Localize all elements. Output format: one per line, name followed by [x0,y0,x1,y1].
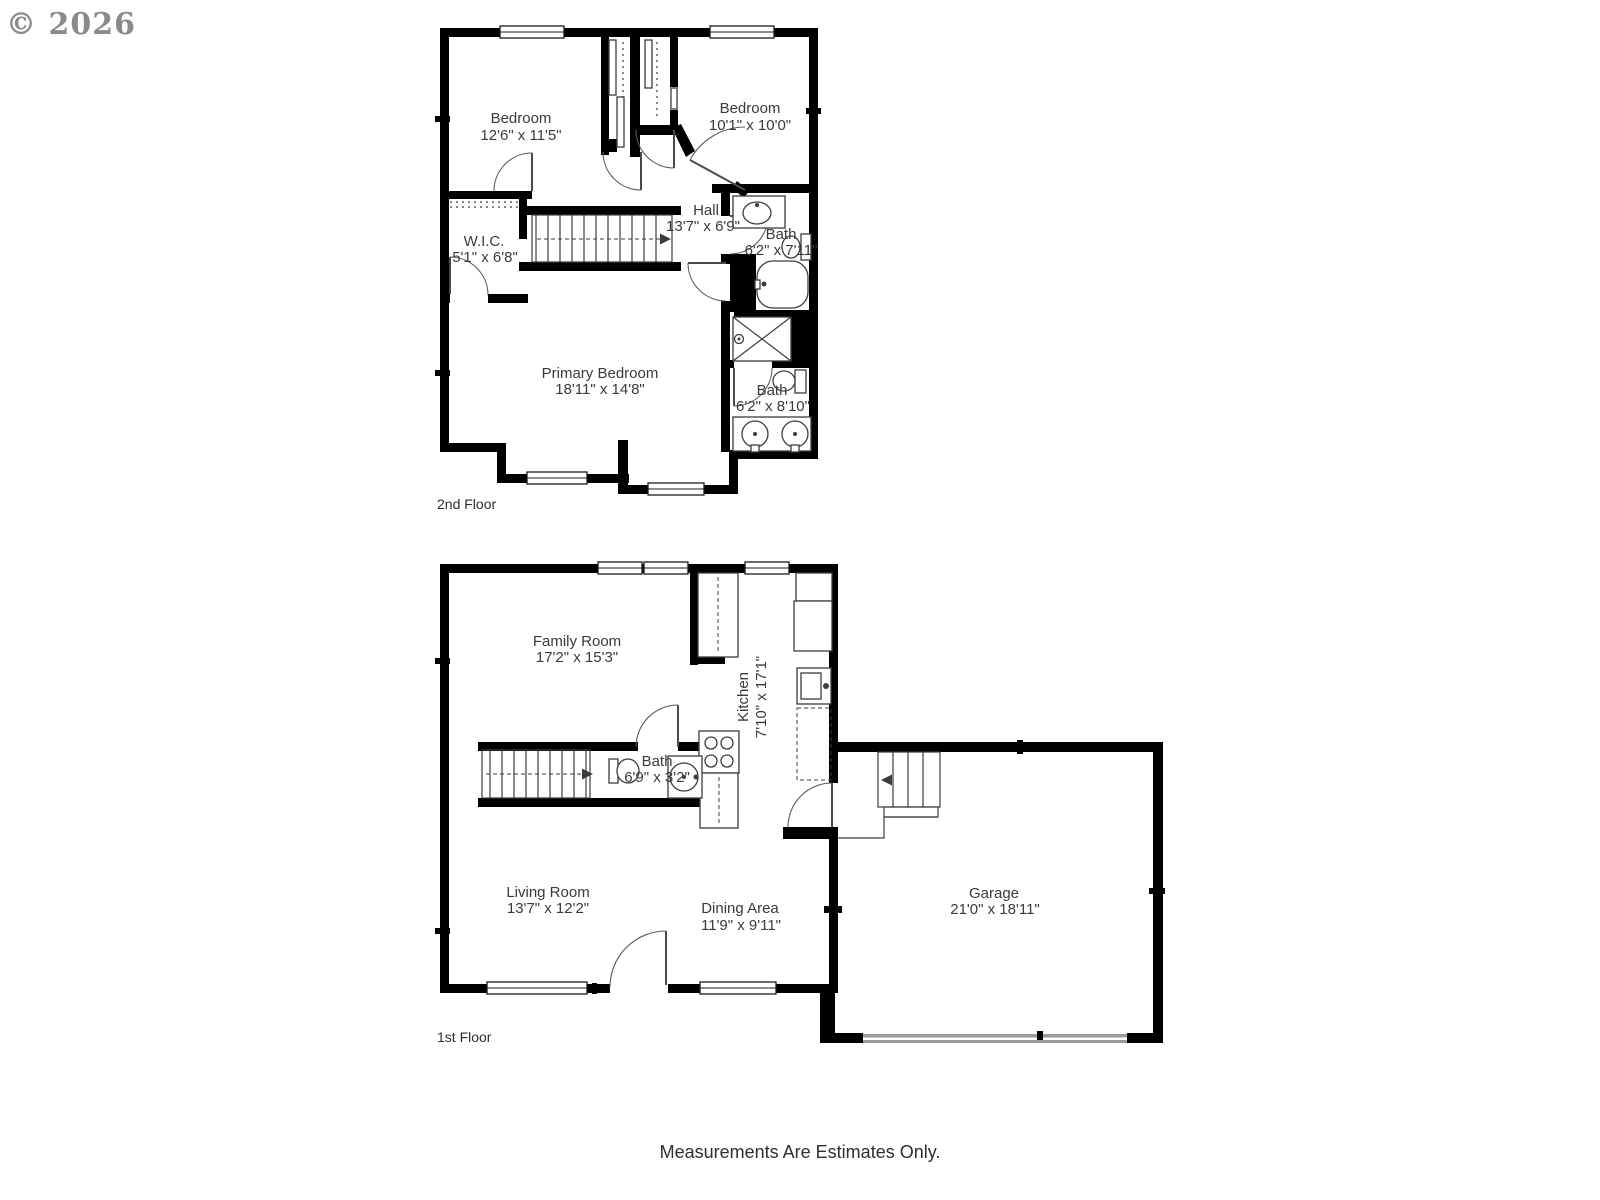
closet-slider-panel [671,88,677,109]
room-dims: 5'1" x 6'8" [452,249,518,266]
room-name: Primary Bedroom [542,365,659,382]
room-name: Garage [969,885,1019,902]
room-name: Hall [693,202,719,219]
room-dims: 11'9" x 9'11" [701,917,781,934]
room-dims: 6'2" x 7'11" [745,242,818,259]
door [603,152,641,190]
room-label-wic: W.I.C. 5'1" x 6'8" [452,233,518,266]
room-dims: 10'1" x 10'0" [709,117,791,134]
floor-label-2nd: 2nd Floor [437,496,496,512]
window [648,483,704,495]
room-label-bath-upper: Bath 6'2" x 7'11" [745,226,818,259]
window [598,562,642,574]
floor-plan-page: © 2026 [0,0,1600,1200]
disclaimer-text: Measurements Are Estimates Only. [660,1142,941,1162]
room-name: Bath [766,226,797,243]
room-label-living-room: Living Room 13'7" x 12'2" [506,884,589,917]
floor-plan-canvas: © 2026 [0,0,1600,1200]
closet-slider-panel [609,40,616,95]
front-door [610,931,666,987]
room-label-garage: Garage 21'0" x 18'11" [950,885,1040,918]
garage-entry-door [788,783,832,827]
stair-platform [838,817,938,838]
room-dims: 13'7" x 6'9" [666,218,740,235]
door [690,127,745,190]
room-dims: 7'10" x 17'1" [753,656,770,738]
room-dims: 13'7" x 12'2" [507,900,589,917]
garage-door [863,1034,1127,1038]
garage-door [863,1040,1127,1043]
double-vanity-sinks [733,417,811,452]
dishwasher [797,708,831,780]
stairs-direction-arrow [660,234,671,245]
room-name: Bedroom [720,100,781,117]
floor-label-1st: 1st Floor [437,1029,492,1045]
bathtub [755,261,808,308]
window [710,26,774,38]
room-label-kitchen: Kitchen 7'10" x 17'1" [735,656,770,738]
stairs-direction-arrow [881,775,892,786]
room-label-dining-area: Dining Area 11'9" x 9'11" [701,900,781,934]
door [688,263,726,301]
shower [733,317,791,361]
kitchen-sink [797,668,831,704]
room-dims: 18'11" x 14'8" [555,381,645,398]
room-name: Dining Area [701,900,779,917]
room-label-bedroom-2: Bedroom 10'1" x 10'0" [709,100,791,134]
room-name: Family Room [533,633,621,650]
room-name: W.I.C. [464,233,505,250]
room-dims: 6'2" x 8'10" [736,398,810,415]
second-floor-plan: Bedroom 12'6" x 11'5" Bedroom 10'1" x 10… [435,26,821,512]
room-dims: 6'9" x 3'2" [624,769,690,786]
window [745,562,789,574]
stove [699,731,739,773]
refrigerator [794,573,832,651]
room-label-family-room: Family Room 17'2" x 15'3" [533,633,621,666]
room-label-bedroom-1: Bedroom 12'6" x 11'5" [480,110,561,144]
kitchen-counter [700,773,738,828]
closet-slider-panel [645,40,652,88]
stairs-direction-arrow [582,769,593,780]
room-dims: 17'2" x 15'3" [536,649,618,666]
garage-staircase [838,752,940,838]
window [527,472,587,484]
first-floor-staircase [482,750,593,798]
bathroom-sink [733,196,785,228]
window [487,982,587,994]
room-name: Bath [642,753,673,770]
closet-slider-panel [617,97,624,147]
window [500,26,564,38]
copyright-watermark: © 2026 [6,7,136,42]
window [700,982,776,994]
room-name: Bath [757,382,788,399]
room-dims: 12'6" x 11'5" [480,127,561,144]
window [644,562,688,574]
first-floor-plan: Family Room 17'2" x 15'3" Kitchen 7'10" … [435,562,1165,1045]
room-dims: 21'0" x 18'11" [950,901,1040,918]
room-name: Living Room [506,884,589,901]
room-name: Kitchen [735,672,752,722]
door [636,705,678,747]
kitchen-counter [698,573,738,657]
second-floor-staircase [532,215,672,262]
door [494,153,532,191]
room-name: Bedroom [491,110,552,127]
stair-landing [884,807,938,817]
room-label-primary-bedroom: Primary Bedroom 18'11" x 14'8" [542,365,659,398]
